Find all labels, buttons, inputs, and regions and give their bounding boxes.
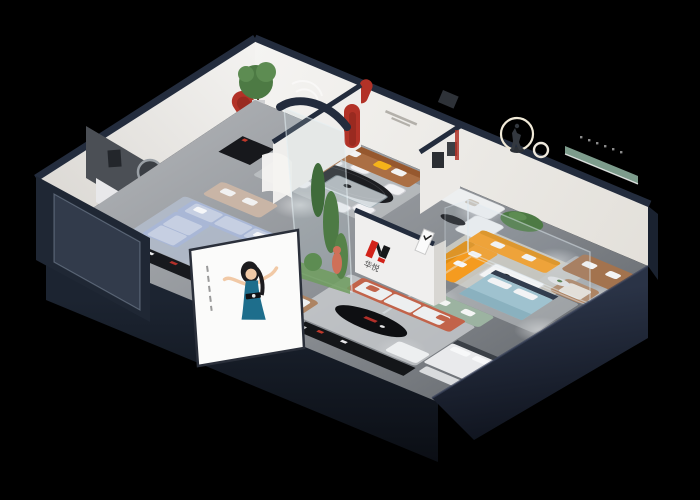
coral-mannequin-statue [332,246,342,274]
scene-canvas: 华悦 [0,0,700,500]
wall-frame [107,150,121,168]
poster-billboard [190,230,304,366]
red-stripe-niche [455,130,459,160]
picture-frame [432,152,444,168]
showroom-render: 华悦 [0,0,700,500]
